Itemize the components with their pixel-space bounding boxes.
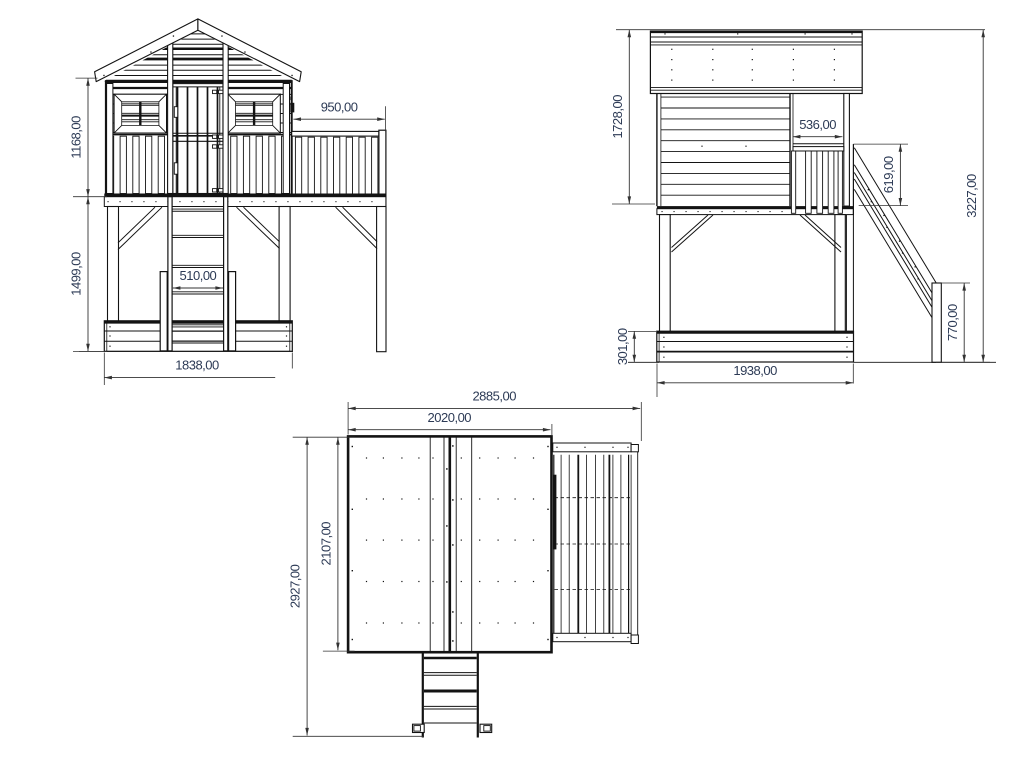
- svg-text:2020,00: 2020,00: [428, 410, 472, 425]
- svg-text:770,00: 770,00: [945, 304, 960, 341]
- svg-text:1499,00: 1499,00: [69, 252, 84, 296]
- svg-text:301,00: 301,00: [615, 328, 630, 365]
- svg-text:1728,00: 1728,00: [610, 95, 625, 139]
- svg-text:2927,00: 2927,00: [288, 564, 303, 608]
- svg-text:2107,00: 2107,00: [319, 522, 334, 566]
- svg-text:3227,00: 3227,00: [964, 174, 979, 218]
- svg-text:950,00: 950,00: [321, 99, 358, 114]
- svg-text:1168,00: 1168,00: [69, 116, 84, 159]
- svg-text:510,00: 510,00: [180, 268, 217, 283]
- svg-text:1938,00: 1938,00: [733, 363, 777, 378]
- svg-text:1838,00: 1838,00: [175, 357, 219, 372]
- svg-text:2885,00: 2885,00: [472, 389, 516, 404]
- svg-text:536,00: 536,00: [799, 117, 836, 132]
- svg-text:619,00: 619,00: [881, 156, 896, 193]
